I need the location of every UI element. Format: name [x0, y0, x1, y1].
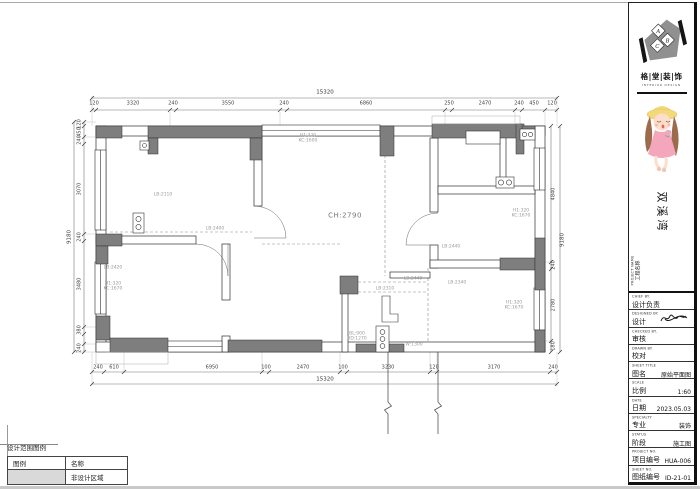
field-label-en: DRAWN BY. [632, 346, 684, 350]
field-label-zh: 阶段 [632, 438, 646, 448]
title-block-field: DRAWN BY. 校对 [629, 345, 694, 362]
logo-letter-b: B [664, 38, 669, 44]
section-break-lines [385, 352, 442, 434]
field-value: ID-21-01 [665, 475, 691, 482]
floor-plan-drawing [0, 0, 628, 489]
field-label-zh: 比例 [632, 386, 646, 396]
title-block-field: CHIEF BY. 设计负责 [629, 293, 694, 310]
project-name-char: 湾 [655, 193, 669, 258]
design-scope-legend: 设计范围图例 图例 名称 非设计区域 [0, 442, 130, 452]
floor-plan: 1203320240355024068602502470240450120240… [0, 0, 628, 489]
title-block-field: SHEET NO. 图纸编号 ID-21-01 [629, 466, 694, 482]
legend-row: 非设计区域 [8, 470, 128, 485]
field-label-en: SCALE [632, 380, 684, 384]
title-block-panel: A B C 格|堂|装|饰 INTERIOR DESIGN [628, 2, 697, 485]
logo-letter-a: A [655, 29, 660, 35]
field-label-zh: 专业 [632, 420, 646, 430]
logo-icon: A B C [634, 15, 690, 65]
field-label-zh: 项目编号 [632, 455, 660, 465]
title-block-field: PROJECT NO. 项目编号 HUA-006 [629, 448, 694, 465]
logo-letter-c: C [655, 44, 660, 50]
legend-header-name: 名称 [66, 457, 128, 470]
field-label-en: SHEET TITLE [632, 363, 684, 367]
title-block-field: SHEET TITLE 图名 原始平面图 [629, 362, 694, 379]
door-swings [196, 206, 438, 276]
field-value: 装饰 [679, 421, 691, 430]
drawing-sheet: 1203320240355024068602502470240450120240… [0, 0, 700, 489]
field-label-zh: 图名 [632, 369, 646, 379]
title-block-field: STATUS 阶段 施工图 [629, 431, 694, 448]
legend-header-symbol: 图例 [8, 457, 66, 470]
legend-divider-line [0, 444, 58, 445]
beam-dashed-lines [110, 140, 535, 352]
field-label-en: SHEET NO. [632, 467, 684, 471]
field-label-en: CHIEF BY. [632, 294, 684, 298]
title-block-field: CHECKED BY. 审核 [629, 328, 694, 345]
girl-cartoon-icon [638, 100, 686, 174]
field-value: HUA-006 [665, 458, 692, 465]
field-label-en: PROJECT NO. [632, 449, 684, 453]
field-label-en: SPECIALTY [632, 415, 684, 419]
field-label-zh: 图纸编号 [632, 472, 660, 482]
field-label-en: STATUS [632, 432, 684, 436]
company-logo: A B C [629, 15, 694, 69]
field-label-zh: 日期 [632, 403, 646, 413]
field-label-zh: 设计 [632, 317, 646, 327]
title-block-field: DATE 日期 2023.05.03 [629, 397, 694, 414]
title-block-field: SPECIALTY 专业 装饰 [629, 414, 694, 431]
brand-name-cn: 格|堂|装|饰 [629, 71, 694, 82]
project-name-vertical: 双溪湾 [629, 190, 694, 232]
field-value: 施工图 [673, 439, 691, 448]
panel-divider [637, 92, 687, 94]
signature-scribble [660, 311, 692, 326]
legend-swatch [8, 470, 65, 484]
walls-hollow [96, 126, 545, 352]
field-label-en: DATE [632, 398, 684, 402]
field-label-zh: 校对 [632, 351, 646, 361]
title-block-fields: CHIEF BY. 设计负责 DESIGNED BY. 设计 CHECKED B… [629, 291, 694, 482]
title-block-field: DESIGNED BY. 设计 [629, 310, 694, 327]
field-value: 2023.05.03 [657, 406, 691, 413]
legend-row-name: 非设计区域 [66, 470, 128, 485]
field-label-zh: 设计负责 [632, 300, 660, 310]
field-value: 原始平面图 [661, 370, 691, 379]
field-label-zh: 审核 [632, 334, 646, 344]
title-block-field: SCALE 比例 1:60 [629, 379, 694, 396]
brand-name-en: INTERIOR DESIGN [629, 83, 694, 87]
field-label-en: CHECKED BY. [632, 329, 684, 333]
field-value: 1:60 [678, 389, 691, 396]
legend-table: 图例 名称 非设计区域 [7, 456, 128, 485]
